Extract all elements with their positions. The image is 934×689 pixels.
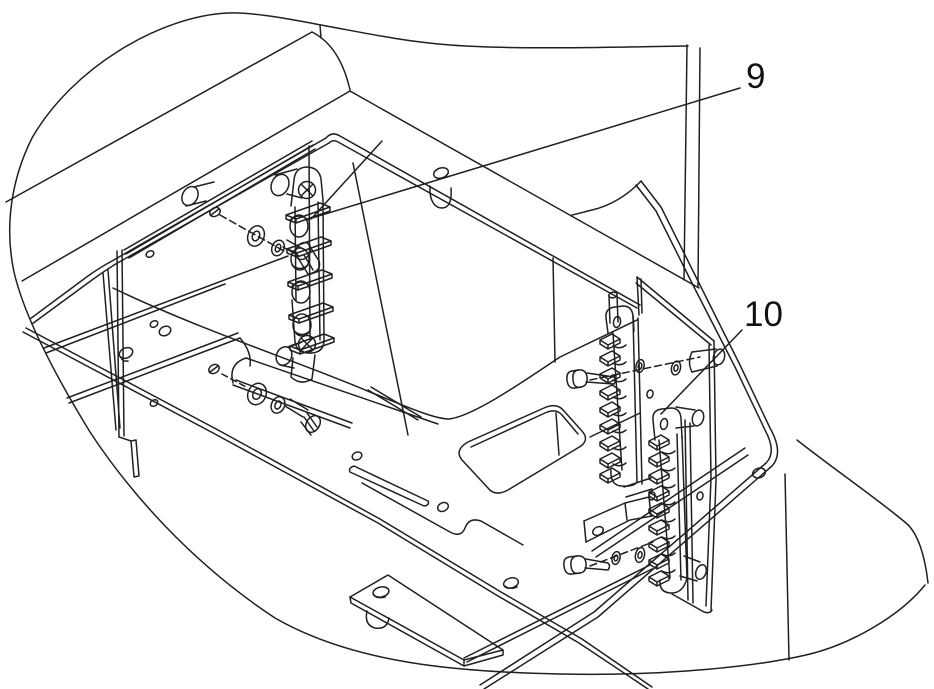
svg-text:9: 9 xyxy=(746,57,765,96)
svg-text:10: 10 xyxy=(744,295,783,334)
